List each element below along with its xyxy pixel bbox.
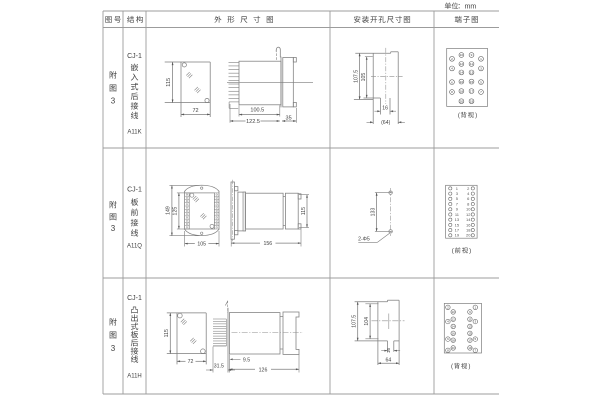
svg-text:16: 16 xyxy=(386,348,392,354)
svg-text:105: 105 xyxy=(197,242,206,248)
svg-text:8: 8 xyxy=(451,90,453,94)
svg-text:CJ-1: CJ-1 xyxy=(127,53,142,60)
svg-text:14: 14 xyxy=(460,71,464,75)
svg-text:10: 10 xyxy=(460,53,464,57)
svg-text:31.5: 31.5 xyxy=(214,364,224,370)
svg-text:6: 6 xyxy=(451,80,453,84)
svg-text:15: 15 xyxy=(470,80,474,84)
svg-text:12: 12 xyxy=(460,62,464,66)
svg-text:156: 156 xyxy=(263,241,272,247)
svg-text:): ) xyxy=(468,363,470,370)
svg-text:18: 18 xyxy=(460,89,464,93)
svg-text:11: 11 xyxy=(468,317,471,321)
svg-text:72: 72 xyxy=(192,108,198,114)
svg-text:35: 35 xyxy=(286,115,292,121)
svg-text:5: 5 xyxy=(480,80,482,84)
svg-text:7: 7 xyxy=(480,90,482,94)
svg-text:19: 19 xyxy=(470,99,474,103)
svg-text:105: 105 xyxy=(361,73,367,82)
svg-text:115: 115 xyxy=(301,207,307,215)
svg-text:115: 115 xyxy=(164,329,170,337)
svg-text:149: 149 xyxy=(166,206,172,215)
svg-text:20: 20 xyxy=(452,346,456,350)
svg-text:9: 9 xyxy=(471,53,473,57)
svg-text:mm: mm xyxy=(465,3,477,10)
svg-text:3: 3 xyxy=(480,67,482,71)
svg-text:126: 126 xyxy=(259,367,268,373)
svg-text:17: 17 xyxy=(470,89,474,93)
svg-text:20: 20 xyxy=(460,99,464,103)
svg-text:A11K: A11K xyxy=(127,130,141,136)
svg-text:1: 1 xyxy=(480,57,482,61)
svg-text:3: 3 xyxy=(111,224,116,233)
svg-text:19: 19 xyxy=(455,233,460,238)
svg-text:(64): (64) xyxy=(381,120,390,126)
svg-text:17: 17 xyxy=(468,338,472,342)
svg-text:72: 72 xyxy=(188,359,194,365)
svg-text:CJ-1: CJ-1 xyxy=(127,295,142,302)
svg-text:115: 115 xyxy=(166,78,172,87)
svg-text:107.5: 107.5 xyxy=(352,315,358,328)
svg-text:107.5: 107.5 xyxy=(353,70,359,83)
svg-text:16: 16 xyxy=(452,331,456,335)
svg-text:): ) xyxy=(475,112,477,119)
svg-text:15: 15 xyxy=(468,331,472,335)
svg-text:): ) xyxy=(469,248,471,255)
svg-text:16: 16 xyxy=(460,80,464,84)
svg-text:3: 3 xyxy=(111,97,116,106)
svg-text:64: 64 xyxy=(386,357,392,363)
svg-text:14: 14 xyxy=(452,325,456,329)
svg-text:19: 19 xyxy=(468,346,472,350)
svg-text:100.5: 100.5 xyxy=(250,108,264,114)
svg-text:13: 13 xyxy=(470,71,474,75)
svg-text:122.5: 122.5 xyxy=(246,119,260,125)
svg-text:104: 104 xyxy=(364,317,370,326)
svg-text:20: 20 xyxy=(466,233,471,238)
svg-text:133: 133 xyxy=(370,208,376,217)
svg-text:12: 12 xyxy=(452,317,456,321)
svg-text:10: 10 xyxy=(452,310,456,314)
svg-text:2-Φ5: 2-Φ5 xyxy=(358,237,370,243)
svg-text:A11H: A11H xyxy=(127,374,142,380)
svg-text:2: 2 xyxy=(451,57,453,61)
svg-text:A11Q: A11Q xyxy=(127,243,142,249)
svg-text:13: 13 xyxy=(468,325,472,329)
svg-text:CJ-1: CJ-1 xyxy=(127,187,142,194)
svg-text:11: 11 xyxy=(470,62,473,66)
svg-text:16: 16 xyxy=(382,106,388,112)
svg-text:18: 18 xyxy=(452,338,456,342)
svg-text:4: 4 xyxy=(451,67,453,71)
svg-text:3: 3 xyxy=(111,344,116,353)
svg-text:125: 125 xyxy=(173,207,179,216)
svg-text:9.5: 9.5 xyxy=(243,357,250,363)
